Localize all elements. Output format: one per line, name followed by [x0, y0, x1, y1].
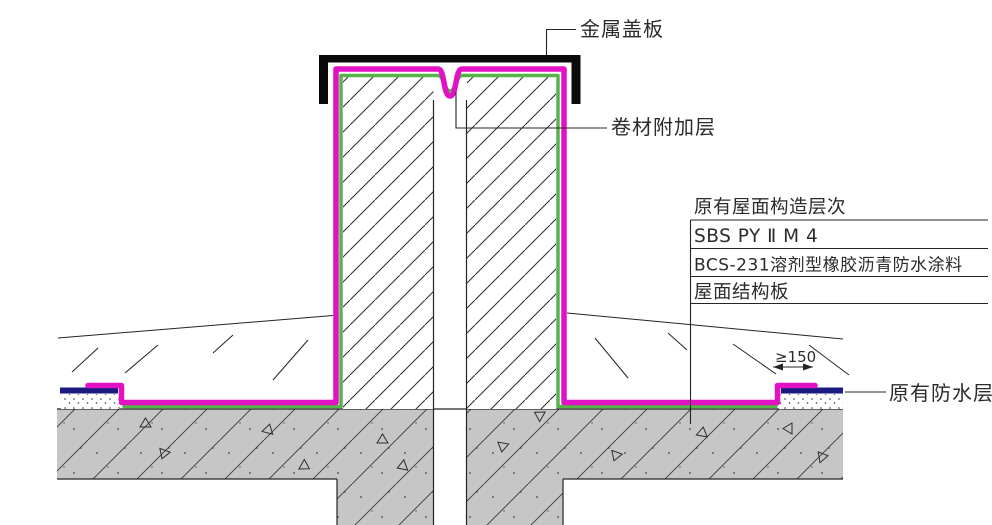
- table-row-structural-slab: 屋面结构板: [694, 282, 789, 303]
- roof-expansion-joint-detail: ≥150 金属盖板 卷材附加层 原有防水层 原有屋面构造层次 SBS PY Ⅱ …: [0, 0, 992, 525]
- label-metal-cover-plate: 金属盖板: [580, 17, 664, 41]
- existing-waterproof-strip-right: [781, 388, 843, 394]
- dimension-value: ≥150: [775, 348, 816, 366]
- table-row-bcs: BCS-231溶剂型橡胶沥青防水涂料: [694, 256, 963, 276]
- existing-waterproof-strip-left: [60, 388, 118, 394]
- table-row-sbs: SBS PY Ⅱ M 4: [694, 226, 818, 247]
- existing-roof-buildup-left: [60, 388, 120, 410]
- left-wall-hatch: [343, 77, 434, 409]
- detail-drawing-canvas: ≥150 金属盖板 卷材附加层 原有防水层 原有屋面构造层次 SBS PY Ⅱ …: [0, 0, 992, 525]
- table-title: 原有屋面构造层次: [694, 197, 846, 218]
- existing-roof-buildup-right: [779, 388, 843, 410]
- label-membrane-additional-layer: 卷材附加层: [611, 115, 716, 139]
- label-existing-waterproof-layer: 原有防水层: [889, 381, 992, 405]
- existing-screed-stipple-left: [61, 394, 120, 409]
- existing-screed-stipple-right: [779, 394, 843, 409]
- right-wall-hatch: [467, 77, 556, 409]
